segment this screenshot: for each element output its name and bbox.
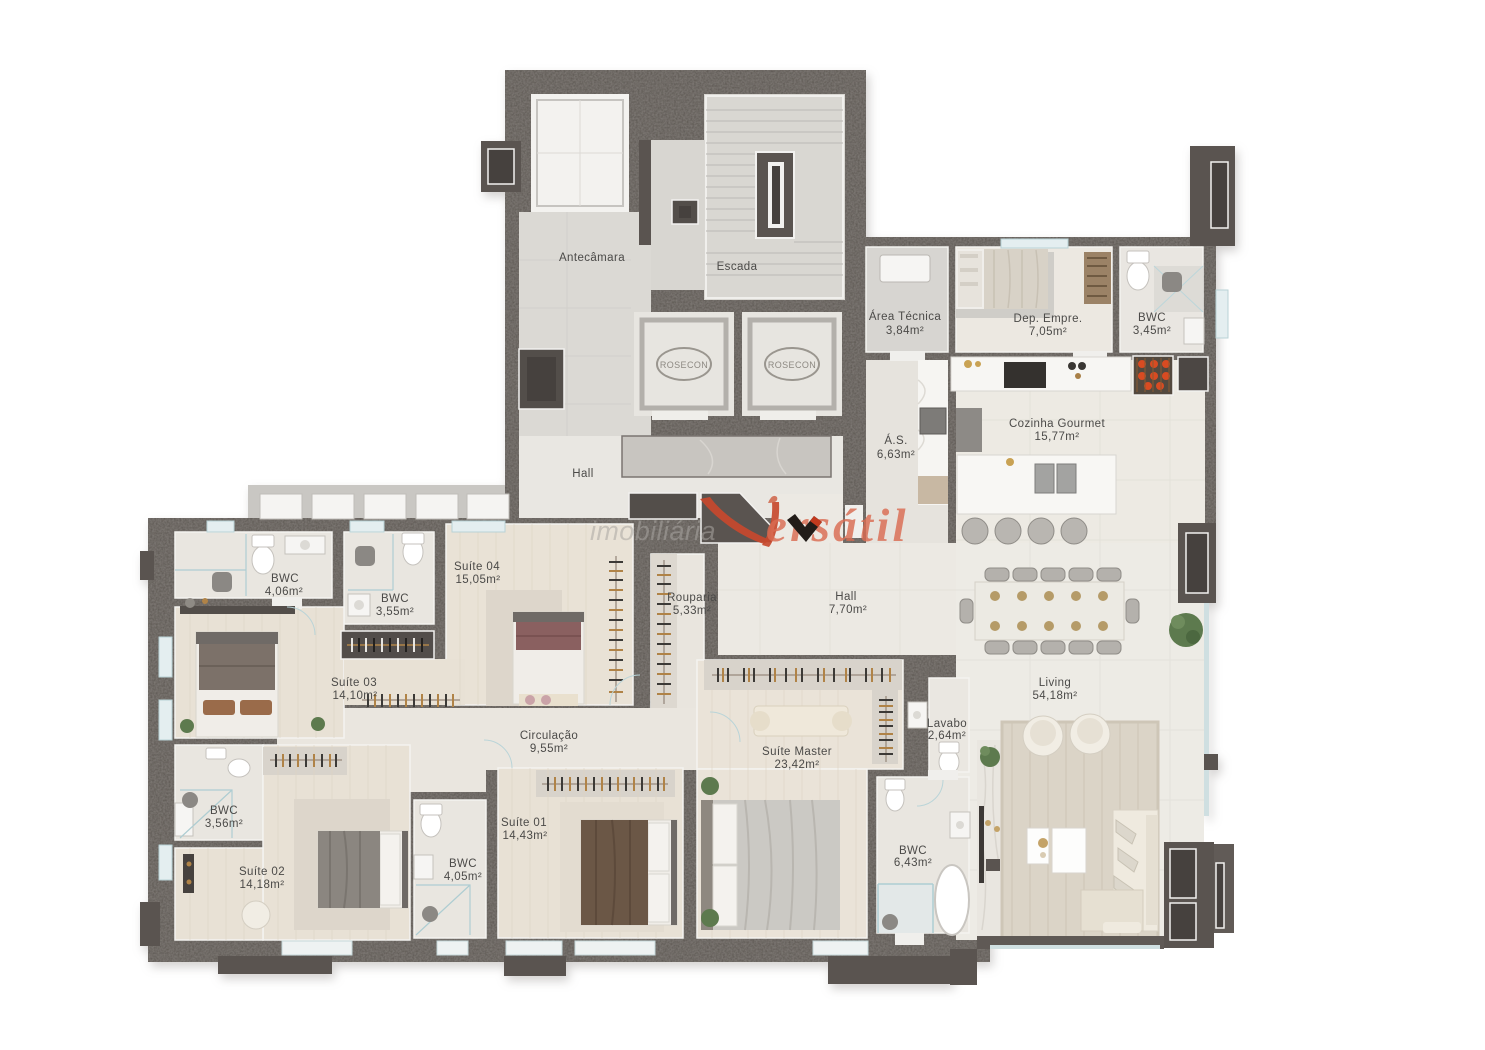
svg-text:3,55m²: 3,55m²: [376, 606, 414, 618]
svg-text:Suíte 01: Suíte 01: [501, 817, 547, 829]
svg-text:ersátil: ersátil: [766, 500, 906, 552]
svg-text:3,56m²: 3,56m²: [205, 818, 243, 830]
svg-text:6,43m²: 6,43m²: [894, 857, 932, 869]
svg-text:54,18m²: 54,18m²: [1033, 690, 1078, 702]
svg-text:BWC: BWC: [1138, 312, 1166, 324]
svg-text:Antecâmara: Antecâmara: [559, 252, 625, 264]
svg-text:4,05m²: 4,05m²: [444, 871, 482, 883]
svg-text:14,10m²: 14,10m²: [333, 690, 378, 702]
svg-text:Suíte Master: Suíte Master: [762, 746, 832, 758]
svg-text:7,70m²: 7,70m²: [829, 604, 867, 616]
svg-text:BWC: BWC: [210, 805, 238, 817]
svg-text:7,05m²: 7,05m²: [1029, 326, 1067, 338]
svg-text:15,05m²: 15,05m²: [456, 574, 501, 586]
svg-text:Rouparia: Rouparia: [667, 592, 717, 604]
svg-text:Living: Living: [1039, 677, 1071, 689]
svg-text:4,06m²: 4,06m²: [265, 586, 303, 598]
svg-text:Cozinha Gourmet: Cozinha Gourmet: [1009, 418, 1106, 430]
svg-text:BWC: BWC: [899, 845, 927, 857]
svg-text:Suíte 02: Suíte 02: [239, 866, 285, 878]
svg-text:2,64m²: 2,64m²: [928, 730, 966, 742]
svg-text:Hall: Hall: [572, 468, 593, 480]
svg-text:Dep. Empre.: Dep. Empre.: [1014, 313, 1083, 325]
svg-text:Hall: Hall: [835, 591, 856, 603]
svg-text:3,45m²: 3,45m²: [1133, 325, 1171, 337]
svg-text:Á.S.: Á.S.: [884, 434, 907, 447]
svg-text:imobiliária: imobiliária: [590, 516, 716, 546]
svg-text:ROSECON: ROSECON: [768, 360, 816, 370]
svg-text:Escada: Escada: [717, 261, 758, 273]
svg-text:23,42m²: 23,42m²: [775, 759, 820, 771]
svg-text:BWC: BWC: [271, 573, 299, 585]
svg-text:Suíte 03: Suíte 03: [331, 677, 377, 689]
svg-text:15,77m²: 15,77m²: [1035, 431, 1080, 443]
svg-text:ROSECON: ROSECON: [660, 360, 708, 370]
svg-text:BWC: BWC: [449, 858, 477, 870]
svg-text:3,84m²: 3,84m²: [886, 325, 924, 337]
svg-text:14,43m²: 14,43m²: [503, 830, 548, 842]
svg-text:9,55m²: 9,55m²: [530, 743, 568, 755]
svg-text:Circulação: Circulação: [520, 730, 578, 742]
svg-text:Área Técnica: Área Técnica: [869, 310, 942, 323]
svg-text:BWC: BWC: [381, 593, 409, 605]
svg-text:Lavabo: Lavabo: [927, 718, 967, 730]
svg-text:14,18m²: 14,18m²: [240, 879, 285, 891]
svg-text:5,33m²: 5,33m²: [673, 605, 711, 617]
svg-text:Suíte 04: Suíte 04: [454, 561, 500, 573]
svg-text:6,63m²: 6,63m²: [877, 449, 915, 461]
